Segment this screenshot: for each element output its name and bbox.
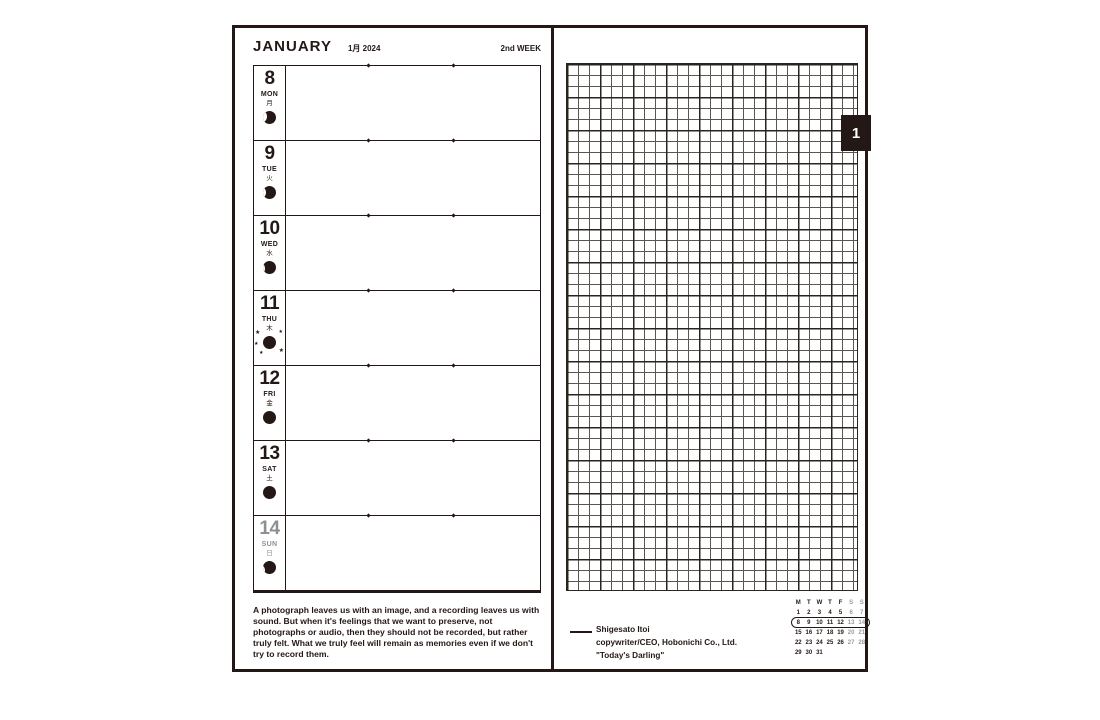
attribution-name: Shigesato Itoi [596, 625, 650, 634]
day-cell: 11 THU 木 ★ ★ ★ ★ ★ [254, 291, 286, 365]
mini-calendar-cell [846, 648, 857, 658]
moon-phase-icon [263, 186, 276, 199]
day-abbr: WED [261, 241, 278, 248]
day-abbr: MON [261, 91, 278, 98]
attribution-title: copywriter/CEO, Hobonichi Co., Ltd. [596, 638, 737, 647]
mini-calendar-cell: 17 [814, 628, 825, 638]
mini-calendar-grid: MTWTFSS123456789101112131415161718192021… [793, 599, 867, 658]
day-row-fri: 12 FRI 金 [254, 366, 540, 441]
mini-calendar-cell: 19 [835, 628, 846, 638]
mini-calendar-cell: S [856, 599, 867, 608]
mini-calendar-cell: 24 [814, 638, 825, 648]
week-number-label: 2nd WEEK [501, 44, 541, 53]
sparkle-icon: ★ [279, 330, 283, 335]
day-writing-area [286, 291, 540, 365]
day-abbr: SAT [262, 466, 276, 473]
day-abbr: SUN [262, 541, 278, 548]
day-cell: 9 TUE 火 [254, 141, 286, 215]
day-cell: 12 FRI 金 [254, 366, 286, 440]
page-spine-divider [551, 28, 554, 669]
moon-phase-icon [263, 411, 276, 424]
mini-calendar-cell: F [835, 599, 846, 608]
day-cell: 10 WED 水 [254, 216, 286, 290]
mini-calendar-cell [856, 648, 867, 658]
mini-calendar-cell: 7 [856, 608, 867, 618]
day-cell: 14 SUN 日 [254, 516, 286, 590]
month-title: JANUARY [253, 38, 332, 55]
planner-spread: JANUARY 1月 2024 2nd WEEK 8 MON 月 9 [232, 25, 868, 672]
mini-calendar-cell: 18 [825, 628, 836, 638]
mini-calendar-cell: 30 [804, 648, 815, 658]
mini-calendar-cell: S [846, 599, 857, 608]
mini-calendar-cell: 26 [835, 638, 846, 648]
mini-calendar-cell: 3 [814, 608, 825, 618]
day-kanji: 木 [266, 325, 273, 332]
day-kanji: 日 [266, 550, 273, 557]
day-kanji: 火 [266, 175, 273, 182]
moon-phase-icon [263, 486, 276, 499]
day-abbr: THU [262, 316, 277, 323]
mini-calendar-cell: 11 [825, 618, 836, 628]
mini-calendar-cell: 23 [804, 638, 815, 648]
moon-phase-icon [263, 561, 276, 574]
moon-phase-icon: ★ ★ ★ ★ ★ [263, 336, 276, 349]
day-number: 12 [259, 368, 279, 389]
mini-calendar-cell: T [825, 599, 836, 608]
month-index-tab: 1 [841, 115, 871, 151]
moon-phase-icon [263, 261, 276, 274]
day-writing-area [286, 441, 540, 515]
mini-calendar-cell [835, 648, 846, 658]
mini-calendar-cell: 4 [825, 608, 836, 618]
grid-note-area [566, 63, 858, 591]
day-kanji: 土 [266, 475, 273, 482]
day-cell: 13 SAT 土 [254, 441, 286, 515]
mini-calendar-cell: 10 [814, 618, 825, 628]
sparkle-icon: ★ [254, 342, 258, 347]
day-writing-area [286, 216, 540, 290]
day-writing-area [286, 516, 540, 590]
mini-calendar-cell: 15 [793, 628, 804, 638]
day-kanji: 月 [266, 100, 273, 107]
mini-calendar-cell: 29 [793, 648, 804, 658]
left-page-header: JANUARY 1月 2024 2nd WEEK [253, 38, 541, 55]
day-kanji: 水 [266, 250, 273, 257]
day-cell: 8 MON 月 [254, 66, 286, 140]
weekly-day-table: 8 MON 月 9 TUE 火 [253, 65, 541, 593]
day-number: 11 [260, 293, 279, 314]
mini-calendar-cell: 28 [856, 638, 867, 648]
attribution-work: "Today's Darling" [596, 651, 664, 660]
day-number: 10 [259, 218, 279, 239]
mini-calendar-cell: T [804, 599, 815, 608]
day-row-mon: 8 MON 月 [254, 66, 540, 141]
mini-calendar-cell: 21 [856, 628, 867, 638]
day-writing-area [286, 366, 540, 440]
mini-calendar-cell: 22 [793, 638, 804, 648]
day-row-thu: 11 THU 木 ★ ★ ★ ★ ★ [254, 291, 540, 366]
day-number: 9 [264, 143, 274, 164]
day-writing-area [286, 66, 540, 140]
mini-calendar-cell: 13 [846, 618, 857, 628]
sparkle-icon: ★ [259, 351, 263, 356]
mini-calendar-cell: 20 [846, 628, 857, 638]
moon-phase-icon [263, 111, 276, 124]
day-abbr: FRI [263, 391, 275, 398]
day-kanji: 金 [266, 400, 273, 407]
mini-calendar-cell: M [793, 599, 804, 608]
day-abbr: TUE [262, 166, 277, 173]
sparkle-icon: ★ [279, 348, 284, 354]
day-row-wed: 10 WED 水 [254, 216, 540, 291]
mini-calendar-cell: 6 [846, 608, 857, 618]
mini-calendar-cell: 25 [825, 638, 836, 648]
attribution-dash [570, 631, 592, 633]
mini-calendar-cell: 1 [793, 608, 804, 618]
sparkle-icon: ★ [255, 330, 260, 336]
mini-calendar-cell: 14 [856, 618, 867, 628]
mini-calendar-cell: 12 [835, 618, 846, 628]
mini-calendar-cell: 31 [814, 648, 825, 658]
day-row-tue: 9 TUE 火 [254, 141, 540, 216]
month-date-label: 1月 2024 [348, 43, 380, 54]
mini-calendar-cell [825, 648, 836, 658]
day-row-sun: 14 SUN 日 [254, 516, 540, 590]
mini-calendar-cell: 5 [835, 608, 846, 618]
mini-month-calendar: MTWTFSS123456789101112131415161718192021… [793, 599, 867, 658]
month-index-tab-label: 1 [852, 125, 860, 142]
day-writing-area [286, 141, 540, 215]
mini-calendar-cell: 9 [804, 618, 815, 628]
mini-calendar-cell: 16 [804, 628, 815, 638]
mini-calendar-cell: 8 [793, 618, 804, 628]
day-number: 13 [259, 443, 279, 464]
day-number: 8 [264, 68, 274, 89]
mini-calendar-cell: 2 [804, 608, 815, 618]
day-row-sat: 13 SAT 土 [254, 441, 540, 516]
mini-calendar-cell: 27 [846, 638, 857, 648]
footer-quote: A photograph leaves us with an image, an… [253, 605, 543, 660]
day-number: 14 [259, 518, 279, 539]
scanned-planner-spread: JANUARY 1月 2024 2nd WEEK 8 MON 月 9 [0, 0, 1100, 720]
mini-calendar-cell: W [814, 599, 825, 608]
